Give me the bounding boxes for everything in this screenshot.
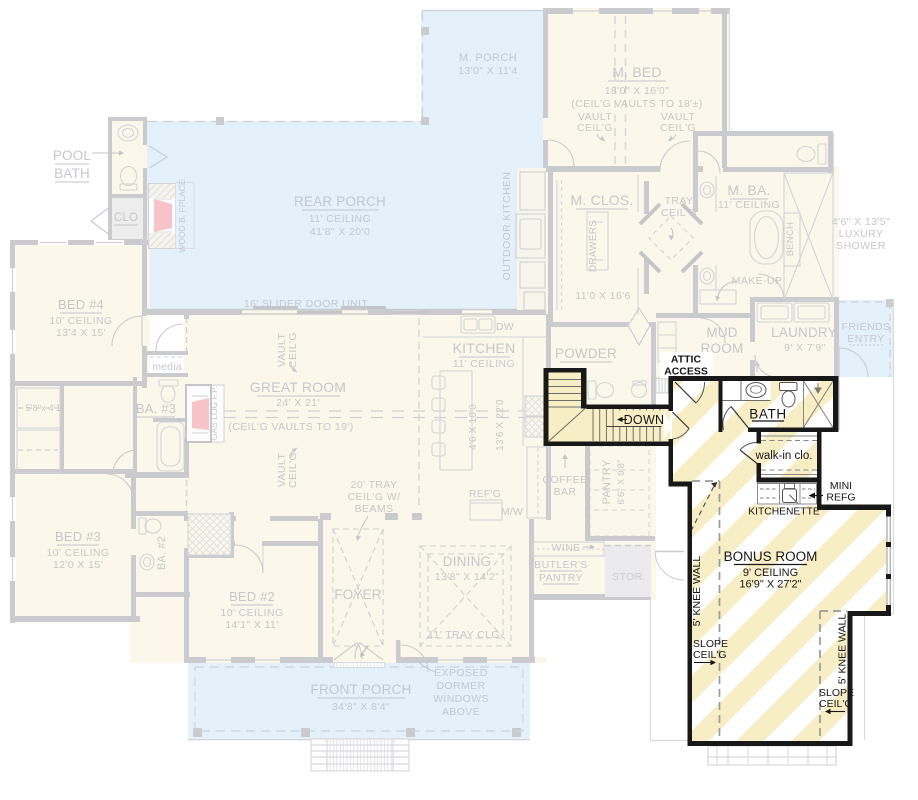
svg-text:REAR PORCH: REAR PORCH [294,194,386,209]
svg-text:BATH: BATH [54,166,90,181]
svg-text:GREAT ROOM: GREAT ROOM [250,379,346,395]
svg-text:ABOVE: ABOVE [442,706,480,718]
svg-text:DRAWERS: DRAWERS [588,220,599,272]
svg-text:ATTIC: ATTIC [671,354,702,366]
svg-text:GAS LOG F.P.: GAS LOG F.P. [209,386,219,440]
svg-text:5' KNEE WALL: 5' KNEE WALL [837,614,849,685]
svg-text:FOYER: FOYER [334,587,382,602]
svg-text:10' CEILING: 10' CEILING [49,315,112,327]
svg-text:M. PORCH: M. PORCH [459,52,517,64]
svg-text:13'8" X 14'2": 13'8" X 14'2" [435,571,500,583]
svg-text:9' CEILING: 9' CEILING [743,567,798,579]
svg-text:LAUNDRY: LAUNDRY [771,325,837,340]
svg-text:CEIL'G: CEIL'G [693,649,727,661]
svg-text:M/W: M/W [501,506,523,518]
svg-text:BENCH: BENCH [785,222,796,256]
svg-text:10' CEILING: 10' CEILING [220,607,283,619]
svg-text:DORMER: DORMER [436,680,485,692]
svg-text:MAKE-UP: MAKE-UP [732,275,783,287]
svg-text:POOL: POOL [53,148,92,163]
svg-text:4'6" X 13'5": 4'6" X 13'5" [832,216,890,228]
svg-text:M. BA.: M. BA. [727,182,770,198]
svg-text:POWDER: POWDER [555,346,617,361]
svg-text:CEIL'G: CEIL'G [577,122,613,134]
svg-text:16'9" X 27'2": 16'9" X 27'2" [739,579,801,591]
svg-text:41'8" X 20'0: 41'8" X 20'0 [310,226,370,238]
svg-text:BEAMS: BEAMS [355,503,394,515]
svg-text:BA. #3: BA. #3 [136,401,176,416]
svg-text:WINE: WINE [551,542,580,554]
svg-text:REFG: REFG [826,492,855,504]
svg-text:BED #2: BED #2 [229,589,275,604]
svg-text:ACCESS: ACCESS [664,366,708,378]
svg-text:KITCHENETTE: KITCHENETTE [748,507,820,518]
svg-text:MINI: MINI [830,480,852,492]
svg-text:13'4 X 15': 13'4 X 15' [56,327,106,339]
svg-text:PANTRY: PANTRY [539,572,583,584]
svg-text:SHOWER: SHOWER [836,240,886,252]
svg-text:ENTRY: ENTRY [847,333,884,345]
svg-text:34'8" X 8'4": 34'8" X 8'4" [332,701,390,713]
svg-text:(CEIL'G VAULTS TO 18'±): (CEIL'G VAULTS TO 18'±) [571,98,702,110]
svg-text:5' KNEE WALL: 5' KNEE WALL [691,556,703,627]
svg-text:9' X 7'9": 9' X 7'9" [784,342,826,354]
svg-text:11' CEILING: 11' CEILING [309,213,371,225]
svg-text:BATH: BATH [749,407,786,422]
svg-text:STOR.: STOR. [612,571,646,583]
svg-text:CEIL'G: CEIL'G [819,698,853,710]
svg-text:11'0 X 16'6: 11'0 X 16'6 [575,290,631,302]
svg-text:6'6" X 9'8": 6'6" X 9'8" [616,459,627,504]
svg-text:CEIL'G: CEIL'G [660,122,696,134]
svg-text:FRIENDS: FRIENDS [842,321,891,333]
svg-text:KITCHEN: KITCHEN [453,340,516,356]
svg-text:COFFEE: COFFEE [543,474,588,486]
svg-text:DOWN: DOWN [624,413,665,427]
svg-text:MUD: MUD [706,325,737,340]
svg-text:CEIL'G: CEIL'G [661,207,697,219]
svg-text:BUTLER'S: BUTLER'S [534,559,588,571]
svg-text:BED #4: BED #4 [58,297,104,312]
svg-text:PANTRY: PANTRY [601,459,613,504]
svg-text:TRAY: TRAY [665,195,694,207]
svg-text:14'1" X 11': 14'1" X 11' [225,619,278,631]
svg-text:BAR: BAR [554,486,577,498]
svg-text:18'0" X 16'0": 18'0" X 16'0" [605,85,670,97]
svg-text:20' TRAY: 20' TRAY [351,479,398,491]
svg-text:13'6 X 22'0: 13'6 X 22'0 [495,399,506,451]
svg-text:CLO: CLO [114,212,138,224]
svg-text:DW: DW [496,321,514,333]
svg-text:CEIL'G W/: CEIL'G W/ [348,491,401,503]
svg-text:LUXURY: LUXURY [839,228,884,240]
svg-text:11' CEILING: 11' CEILING [718,199,780,211]
svg-text:DINING: DINING [443,554,491,569]
svg-text:WINDOWS: WINDOWS [433,693,489,705]
svg-text:BA. #2: BA. #2 [156,536,168,570]
svg-text:BED #3: BED #3 [55,529,101,544]
svg-text:4'6 X 10'0: 4'6 X 10'0 [468,404,479,450]
svg-text:(CEIL'G VAULTS TO 19'): (CEIL'G VAULTS TO 19') [228,421,353,433]
svg-text:11' TRAY CLG: 11' TRAY CLG [428,629,500,641]
svg-text:EXPOSED: EXPOSED [434,667,488,679]
svg-text:REF'G: REF'G [469,488,501,500]
svg-text:12'0 X 15': 12'0 X 15' [53,559,103,571]
svg-text:24' X 21': 24' X 21' [276,397,320,409]
svg-text:FRONT PORCH: FRONT PORCH [311,682,412,697]
svg-text:13'0" X 11'4: 13'0" X 11'4 [458,65,518,77]
svg-text:16' SLIDER DOOR UNIT: 16' SLIDER DOOR UNIT [244,298,369,310]
svg-text:BONUS ROOM: BONUS ROOM [724,549,818,564]
svg-text:M. CLOS.: M. CLOS. [570,192,633,208]
svg-text:walk-in clo.: walk-in clo. [755,450,813,462]
svg-text:M. BED: M. BED [612,64,661,80]
svg-text:WOOD B. FPLACE: WOOD B. FPLACE [177,179,187,253]
svg-text:10' CEILING: 10' CEILING [46,547,109,559]
svg-text:5'8"x 4'1": 5'8"x 4'1" [26,403,65,413]
svg-text:CEIL'G: CEIL'G [287,452,299,488]
svg-text:11' CEILING: 11' CEILING [453,358,515,370]
svg-text:OUTDOOR KITCHEN: OUTDOOR KITCHEN [501,172,513,281]
svg-text:media: media [152,361,182,373]
svg-text:CEIL'G: CEIL'G [287,332,299,368]
